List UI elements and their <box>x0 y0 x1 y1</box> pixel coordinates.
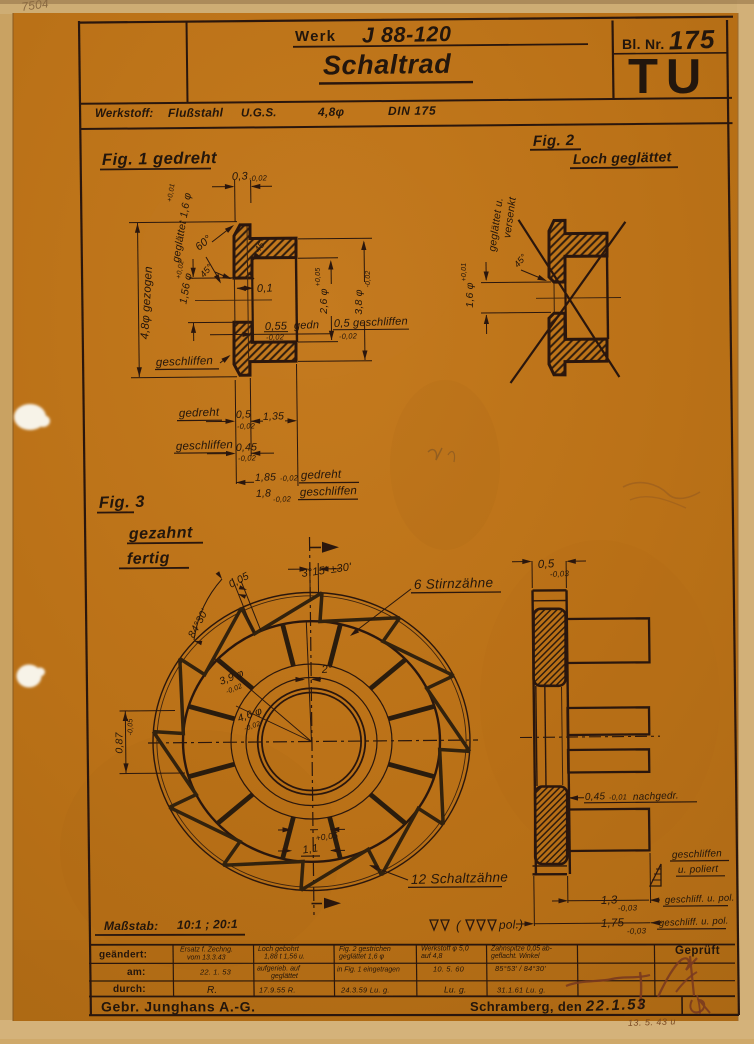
svg-text:22. 1. 53: 22. 1. 53 <box>199 968 232 977</box>
svg-text:u. poliert: u. poliert <box>678 864 720 876</box>
svg-text:geschliffen: geschliffen <box>672 848 723 861</box>
svg-text:Fig. 1 gedreht: Fig. 1 gedreht <box>102 149 218 169</box>
svg-text:Werkstoff φ 5,0: Werkstoff φ 5,0 <box>421 946 469 953</box>
svg-text:0,3: 0,3 <box>232 170 249 183</box>
svg-text:10. 5. 60: 10. 5. 60 <box>433 965 465 974</box>
svg-text:-0,05: -0,05 <box>128 719 135 736</box>
svg-text:0,87: 0,87 <box>114 731 126 753</box>
svg-text:Fig. 3: Fig. 3 <box>99 493 146 512</box>
svg-text:Loch geglättet: Loch geglättet <box>573 148 673 167</box>
svg-text:geschliffen: geschliffen <box>300 485 358 499</box>
svg-text:12 Schaltzähne: 12 Schaltzähne <box>411 869 509 887</box>
svg-text:+0,01: +0,01 <box>461 263 468 282</box>
svg-text:-0,02: -0,02 <box>365 271 372 288</box>
svg-text:1,3: 1,3 <box>601 894 618 907</box>
svg-text:nachgedr.: nachgedr. <box>633 790 679 803</box>
svg-text:22.1.53: 22.1.53 <box>585 996 648 1015</box>
svg-text:Gebr. Junghans A.-G.: Gebr. Junghans A.-G. <box>101 999 256 1015</box>
svg-text:4,8φ: 4,8φ <box>317 105 345 119</box>
svg-text:-0,02: -0,02 <box>238 453 257 463</box>
svg-text:0,55: 0,55 <box>265 320 288 333</box>
svg-text:Loch gebohrt: Loch gebohrt <box>258 946 300 953</box>
svg-text:geschliffen: geschliffen <box>176 439 234 453</box>
svg-text:pol.): pol.) <box>498 917 524 932</box>
svg-text:24.3.59 Lu. g.: 24.3.59 Lu. g. <box>340 986 390 995</box>
svg-text:aufgerieb. auf: aufgerieb. auf <box>257 966 301 973</box>
svg-text:J 88-120: J 88-120 <box>362 22 452 48</box>
svg-text:-0,02: -0,02 <box>237 421 256 431</box>
svg-text:1,6 φ: 1,6 φ <box>464 282 476 307</box>
svg-text:Lu. g.: Lu. g. <box>444 985 466 995</box>
svg-text:1,85: 1,85 <box>255 471 277 484</box>
svg-text:-0,02: -0,02 <box>280 473 299 483</box>
svg-text:U.G.S.: U.G.S. <box>241 107 277 119</box>
svg-text:gedreht: gedreht <box>301 469 342 482</box>
svg-text:Zahnspitze 0,05 ab-: Zahnspitze 0,05 ab- <box>490 946 553 953</box>
svg-text:geglättet: geglättet <box>271 973 299 980</box>
svg-text:17.9.55 R.: 17.9.55 R. <box>259 986 296 995</box>
svg-text:Maßstab:: Maßstab: <box>104 919 158 933</box>
svg-text:-0,03: -0,03 <box>627 926 647 936</box>
svg-text:0,1: 0,1 <box>257 282 273 295</box>
svg-text:1,88 t 1,56 u.: 1,88 t 1,56 u. <box>264 954 305 961</box>
svg-text:-0,03: -0,03 <box>550 569 570 579</box>
svg-text:3,8 φ: 3,8 φ <box>353 289 365 314</box>
svg-text:-0,02: -0,02 <box>273 494 292 504</box>
svg-text:Flußstahl: Flußstahl <box>168 106 224 120</box>
svg-text:auf 4,8: auf 4,8 <box>421 953 443 960</box>
svg-text:0,45: 0,45 <box>236 441 258 454</box>
svg-text:Werk: Werk <box>295 28 336 45</box>
svg-text:-0,02: -0,02 <box>339 331 358 341</box>
svg-text:10:1 ; 20:1: 10:1 ; 20:1 <box>177 917 238 932</box>
svg-text:0,45: 0,45 <box>585 791 606 803</box>
svg-text:vom 13.3.43: vom 13.3.43 <box>187 955 226 962</box>
svg-text:Ersatz f. Zechng.: Ersatz f. Zechng. <box>180 947 233 954</box>
svg-text:Fig. 2: Fig. 2 <box>533 132 575 150</box>
svg-text:1,8: 1,8 <box>256 487 272 500</box>
svg-text:6 Stirnzähne: 6 Stirnzähne <box>414 575 494 592</box>
svg-text:2,6 φ: 2,6 φ <box>318 288 330 314</box>
svg-text:1,75: 1,75 <box>601 917 625 930</box>
svg-text:0,5: 0,5 <box>236 408 252 421</box>
svg-text:-0,03: -0,03 <box>618 903 638 913</box>
svg-text:geschliffen: geschliffen <box>156 355 214 369</box>
svg-text:geglättet 1,6 φ: geglättet 1,6 φ <box>339 954 384 961</box>
svg-text:fertig: fertig <box>127 550 170 568</box>
svg-text:gezahnt: gezahnt <box>128 524 194 543</box>
svg-text:am:: am: <box>127 967 146 978</box>
svg-text:geflacht. Winkel: geflacht. Winkel <box>491 953 540 960</box>
svg-text:+0,05: +0,05 <box>315 268 322 287</box>
svg-text:R.: R. <box>207 985 217 996</box>
svg-text:Schaltrad: Schaltrad <box>323 49 452 81</box>
svg-text:Werkstoff:: Werkstoff: <box>95 108 153 120</box>
svg-text:-0,01: -0,01 <box>609 792 627 802</box>
svg-text:Fig. 2 gestrichen: Fig. 2 gestrichen <box>339 946 391 953</box>
svg-text:2°: 2° <box>320 663 333 676</box>
svg-text:gedn: gedn <box>294 319 320 332</box>
svg-text:geändert:: geändert: <box>99 950 147 961</box>
svg-text:13. 5. 43 u: 13. 5. 43 u <box>628 1016 676 1028</box>
svg-text:DIN 175: DIN 175 <box>388 104 436 118</box>
svg-text:durch:: durch: <box>113 984 146 995</box>
svg-text:in Fig. 1 eingetragen: in Fig. 1 eingetragen <box>337 967 400 974</box>
svg-text:-0,02: -0,02 <box>249 173 268 183</box>
svg-text:Geprüft: Geprüft <box>675 945 720 957</box>
svg-text:1,1: 1,1 <box>302 842 319 856</box>
svg-text:31.1.61 Lu. g.: 31.1.61 Lu. g. <box>497 986 546 995</box>
svg-text:85°53' / 84°30': 85°53' / 84°30' <box>495 964 546 973</box>
svg-text:1,35: 1,35 <box>263 410 285 423</box>
svg-text:gedreht: gedreht <box>179 407 220 420</box>
svg-text:Schramberg, den: Schramberg, den <box>470 999 582 1014</box>
svg-text:TU: TU <box>628 50 709 104</box>
